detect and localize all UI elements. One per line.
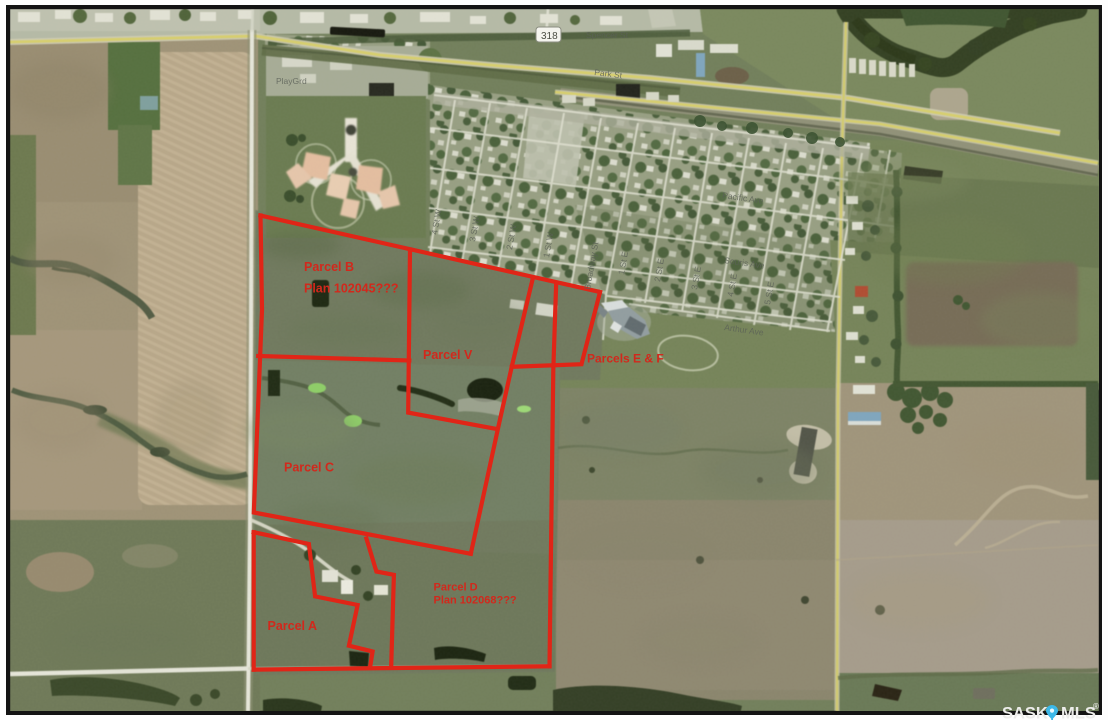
svg-text:318: 318 <box>541 31 558 42</box>
svg-text:Parcel C: Parcel C <box>284 461 334 475</box>
svg-text:Plan 102068???: Plan 102068??? <box>434 595 517 607</box>
svg-text:PlayGrd: PlayGrd <box>276 76 307 86</box>
svg-text:Parcel B: Parcel B <box>304 260 354 274</box>
svg-text:SASK: SASK <box>1002 705 1048 720</box>
svg-text:Parcels E & F: Parcels E & F <box>587 352 664 366</box>
svg-text:Parcel V: Parcel V <box>423 348 473 362</box>
svg-text:MLS: MLS <box>1061 705 1096 720</box>
svg-text:Parcel D: Parcel D <box>434 582 478 594</box>
svg-text:®: ® <box>1093 702 1099 711</box>
svg-text:Plan 102045???: Plan 102045??? <box>304 282 399 296</box>
svg-text:Spencer St: Spencer St <box>586 30 629 40</box>
svg-text:Parcel A: Parcel A <box>268 619 318 633</box>
